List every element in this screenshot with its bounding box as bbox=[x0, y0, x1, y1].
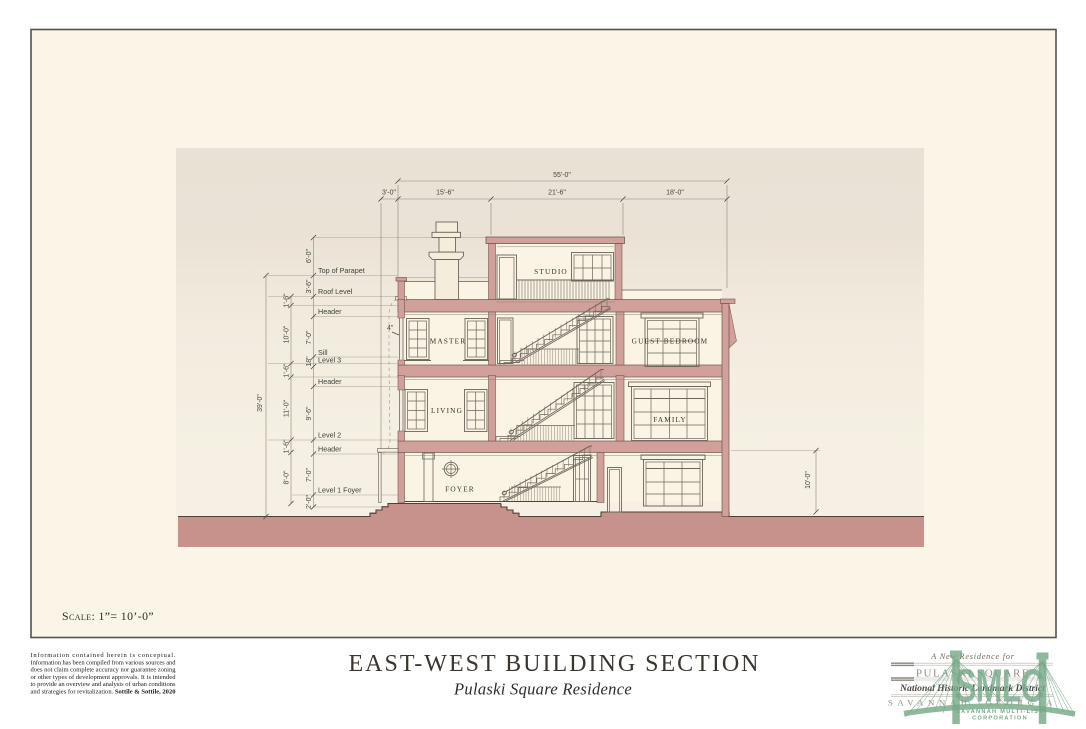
svg-text:or other types of development: or other types of development approvals.… bbox=[31, 674, 177, 681]
svg-text:Header: Header bbox=[318, 377, 342, 386]
svg-text:21'-6": 21'-6" bbox=[548, 190, 566, 197]
svg-text:does not claim complete accura: does not claim complete accuracy nor gua… bbox=[31, 667, 177, 674]
svg-text:18'-0": 18'-0" bbox=[666, 190, 684, 197]
svg-text:8'-0": 8'-0" bbox=[284, 470, 291, 484]
svg-text:FAMILY: FAMILY bbox=[653, 415, 687, 424]
svg-text:6'-0": 6'-0" bbox=[306, 249, 313, 263]
svg-text:Level 3: Level 3 bbox=[318, 356, 341, 365]
svg-text:1'-6": 1'-6" bbox=[284, 293, 291, 307]
svg-text:SAVANNAH MULTI-LIST: SAVANNAH MULTI-LIST bbox=[956, 709, 1044, 715]
svg-text:1'-6": 1'-6" bbox=[284, 439, 291, 453]
svg-text:Header: Header bbox=[318, 445, 342, 454]
svg-text:CORPORATION: CORPORATION bbox=[972, 716, 1028, 722]
svg-text:Level 2: Level 2 bbox=[318, 431, 341, 440]
svg-text:15'-6": 15'-6" bbox=[436, 190, 454, 197]
svg-text:Information contained herein i: Information contained herein is conceptu… bbox=[31, 652, 176, 659]
svg-text:Header: Header bbox=[318, 307, 342, 316]
svg-text:MASTER: MASTER bbox=[430, 337, 467, 346]
svg-text:3'-0": 3'-0" bbox=[382, 190, 396, 197]
svg-text:1'-6": 1'-6" bbox=[284, 363, 291, 377]
svg-text:7'-0": 7'-0" bbox=[306, 330, 313, 344]
svg-text:STUDIO: STUDIO bbox=[534, 267, 568, 276]
svg-text:SMLC: SMLC bbox=[955, 661, 1044, 712]
svg-text:GUEST BEDROOM: GUEST BEDROOM bbox=[632, 337, 709, 346]
svg-text:Scale: 1”= 10’-0”: Scale: 1”= 10’-0” bbox=[62, 609, 154, 623]
svg-text:Pulaski Square Residence: Pulaski Square Residence bbox=[453, 680, 632, 699]
svg-text:Roof Level: Roof Level bbox=[318, 287, 353, 296]
svg-text:55'-0": 55'-0" bbox=[553, 172, 571, 179]
svg-text:LIVING: LIVING bbox=[431, 406, 463, 415]
svg-text:39'-0": 39'-0" bbox=[257, 394, 264, 412]
svg-text:11'-0": 11'-0" bbox=[284, 399, 291, 417]
svg-text:Top of Parapet: Top of Parapet bbox=[318, 266, 365, 275]
svg-text:EAST-WEST BUILDING SECTION: EAST-WEST BUILDING SECTION bbox=[349, 651, 761, 677]
svg-text:4": 4" bbox=[387, 325, 394, 332]
svg-text:Information has been compiled: Information has been compiled from vario… bbox=[31, 659, 177, 666]
svg-text:and strategies for revitalizat: and strategies for revitalization. Sotti… bbox=[31, 689, 177, 696]
svg-text:to provide an overview and ana: to provide an overview and analysis of u… bbox=[31, 681, 176, 688]
svg-text:9'-6": 9'-6" bbox=[306, 406, 313, 420]
svg-text:10'-0": 10'-0" bbox=[284, 325, 291, 343]
svg-text:18": 18" bbox=[306, 356, 313, 367]
svg-text:3'-6": 3'-6" bbox=[306, 279, 313, 293]
svg-text:A New Residence for: A New Residence for bbox=[930, 652, 1015, 661]
svg-text:FOYER: FOYER bbox=[445, 485, 475, 494]
svg-text:10'-0": 10'-0" bbox=[805, 471, 812, 489]
svg-text:2'-0": 2'-0" bbox=[306, 495, 313, 509]
svg-text:7'-0": 7'-0" bbox=[306, 468, 313, 482]
svg-text:Level 1 Foyer: Level 1 Foyer bbox=[318, 486, 362, 495]
